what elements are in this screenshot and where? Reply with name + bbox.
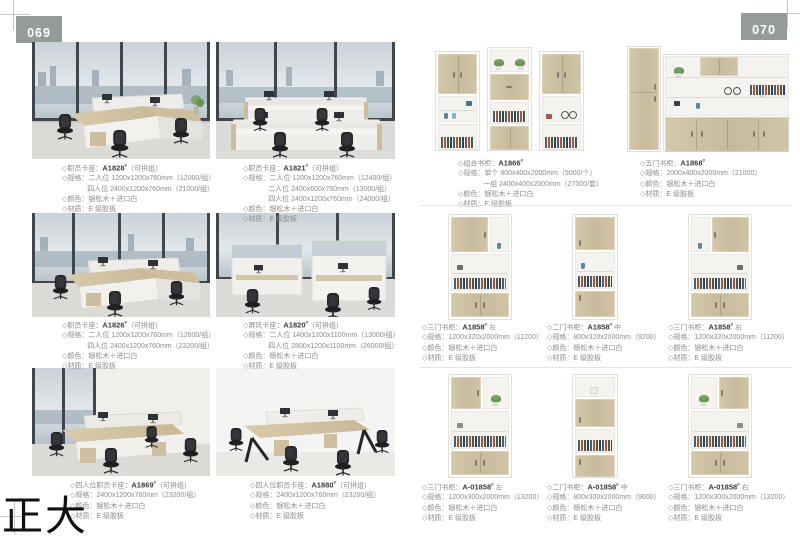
spec-line: ◇规格：800x320x2000mm（9200） [547, 333, 665, 343]
product-specs: ◇规格：800x300x2000mm（9600）◇颜色：银松木＋进口白◇材质：E… [547, 493, 665, 523]
spec-line: ◇颜色：银松木＋进口白 [243, 205, 418, 215]
spec-line: ◇颜色：银松木＋进口白 [250, 502, 425, 512]
spec-line: 四人位 2400x1200x760mm（21000/组） [62, 185, 237, 195]
spec-line: ◇规格：1200x300x2000mm（13200） [668, 493, 793, 503]
spec-line: ◇材质：E 级胶板 [62, 205, 237, 215]
spec-line: ◇规格：2400x1200x760mm（23200/组） [250, 491, 425, 501]
product-category: ◇五门书柜： [640, 160, 680, 167]
product-specs: ◇规格：800x320x2000mm（9200）◇颜色：银松木＋进口白◇材质：E… [547, 333, 665, 363]
bookcase-set-a1866 [435, 47, 585, 155]
product-model: A1820 [283, 320, 305, 329]
product-title: ◇三门书柜：A1858# 左 [422, 322, 547, 333]
caption-a1869: ◇四人位职员卡座：A1869#（可拼组） ◇规格：2400x1200x760mm… [70, 480, 245, 522]
product-category: ◇三门书柜： [422, 484, 462, 491]
spec-line: ◇材质：E 级胶板 [243, 215, 418, 225]
page-number-right: 070 [741, 13, 787, 40]
caption-a1858-right: ◇三门书柜：A1858# 右 ◇规格：1200x320x2000mm（11200… [668, 322, 793, 364]
spec-line: 四人位 2800x1200x1100mm（26000/组） [243, 342, 418, 352]
spec-line: ◇颜色：银松木＋进口白 [422, 344, 547, 354]
product-model: A1858 [708, 322, 730, 331]
spec-line: ◇材质：E 级胶板 [640, 190, 770, 200]
product-category: ◇四人位职员卡座： [250, 482, 311, 489]
workstation-photo-a1828 [32, 42, 210, 159]
product-specs: ◇规格：二人位 1200x1200x760mm（12400/组）二人位 2400… [243, 174, 418, 225]
bookcase-a01858-mid [572, 374, 618, 478]
caption-a1826: ◇职员卡座：A1826#（可拼组） ◇规格：二人位 1200x1200x760m… [62, 320, 237, 372]
photo-illustration [216, 368, 395, 476]
bookcase-unit [435, 51, 480, 151]
product-title: ◇组合书柜：A1866# [458, 158, 588, 169]
spec-line: ◇材质：E 级胶板 [668, 354, 793, 364]
spec-line: ◇材质：E 级胶板 [243, 362, 418, 372]
crop-mark [13, 0, 14, 30]
product-model: A1828 [102, 163, 124, 172]
caption-a01858-right: ◇三门书柜：A-01858# 右 ◇规格：1200x300x2000mm（132… [668, 482, 793, 524]
spec-line: ◇规格：二人位 1200x1200x760mm（12400/组） [243, 174, 418, 184]
spec-line: ◇颜色：银松木＋进口白 [547, 344, 665, 354]
photo-illustration [32, 368, 210, 476]
section-divider [420, 205, 792, 206]
product-model: A1821 [283, 163, 305, 172]
spec-line: ◇颜色：银松木＋进口白 [70, 502, 245, 512]
bookcase-shelf-section [663, 54, 789, 152]
workstation-photo-a1821 [216, 42, 395, 159]
spec-line: ◇规格：单个 800x400x2000mm（9000/个） [458, 169, 588, 179]
spec-line: 一组 2400x400x2000mm（27000/套） [458, 180, 588, 190]
product-model: A-01858 [708, 482, 737, 491]
spec-line: ◇材质：E 级胶板 [70, 512, 245, 522]
product-category: ◇二门书柜： [547, 324, 587, 331]
caption-a1858-left: ◇三门书柜：A1858# 左 ◇规格：1200x320x2000mm（11200… [422, 322, 547, 364]
product-specs: ◇规格：二人位 1200x1200x760mm（12600/组）四人位 2400… [62, 331, 237, 372]
product-title: ◇四人位职员卡座：A1880#（可拼组） [250, 480, 425, 491]
brand-watermark: 正大 [2, 496, 88, 537]
crop-mark [787, 0, 788, 28]
workstation-photo-a1820 [216, 213, 395, 317]
spec-line: ◇颜色：银松木＋进口白 [62, 352, 237, 362]
spec-line: ◇材质：E 级胶板 [250, 512, 425, 522]
spec-line: 四人位 2400x1200x760mm（24000/组） [243, 195, 418, 205]
photo-illustration [216, 213, 395, 317]
workstation-photo-a1826 [32, 213, 210, 317]
product-title: ◇职员卡座：A1828#（可拼组） [62, 163, 237, 174]
spec-line: ◇材质：E 级胶板 [668, 514, 793, 524]
product-specs: ◇规格：2400x1200x760mm（23200/组）◇颜色：银松木＋进口白◇… [250, 491, 425, 521]
product-title: ◇五门书柜：A1868# [640, 158, 770, 169]
caption-a01858-mid: ◇二门书柜：A-01858# 中 ◇规格：800x300x2000mm（9600… [547, 482, 665, 524]
product-model: A1880 [311, 480, 333, 489]
spec-line: ◇材质：E 级胶板 [547, 514, 665, 524]
bookcase-unit [539, 51, 584, 151]
spec-line: ◇规格：二人位 1200x1200x760mm（12000/组） [62, 174, 237, 184]
photo-illustration [32, 213, 210, 317]
product-specs: ◇规格：1200x300x2000mm（13200）◇颜色：银松木＋进口白◇材质… [668, 493, 793, 523]
workstation-photo-a1869 [32, 368, 210, 476]
spec-line: 四人位 2400x1200x760mm（23200/组） [62, 342, 237, 352]
product-model: A1869 [131, 480, 153, 489]
spec-line: ◇颜色：银松木＋进口白 [243, 352, 418, 362]
spec-line: ◇颜色：银松木＋进口白 [668, 504, 793, 514]
bookcase-a1868 [625, 44, 791, 155]
bookcase-a1858-mid [572, 214, 618, 320]
product-specs: ◇规格：1200x320x2000mm（11200）◇颜色：银松木＋进口白◇材质… [668, 333, 793, 363]
product-title: ◇职员卡座：A1826#（可拼组） [62, 320, 237, 331]
spec-line: ◇颜色：银松木＋进口白 [422, 504, 547, 514]
product-specs: ◇规格：2400x1200x760mm（23200/组）◇颜色：银松木＋进口白◇… [70, 491, 245, 521]
caption-a1820: ◇屏风卡座：A1820#（可拼组） ◇规格：二人位 1400x1200x1100… [243, 320, 418, 372]
product-model: A-01858 [587, 482, 616, 491]
product-specs: ◇规格：二人位 1200x1200x760mm（12000/组）四人位 2400… [62, 174, 237, 215]
product-model: A1858 [587, 322, 609, 331]
spec-line: ◇规格：1200x320x2000mm（11200） [422, 333, 547, 343]
partition-cubicle-far [232, 245, 302, 295]
product-title: ◇二门书柜：A1858# 中 [547, 322, 665, 333]
spec-line: 二人位 2400x600x760mm（13000/组） [243, 185, 418, 195]
product-model: A1868 [680, 158, 702, 167]
spec-line: ◇材质：E 级胶板 [547, 354, 665, 364]
catalog-spread: { "page": { "left_number": "069", "right… [0, 0, 800, 544]
product-category: ◇职员卡座： [243, 165, 283, 172]
product-category: ◇三门书柜： [668, 324, 708, 331]
crop-mark [0, 14, 30, 15]
spec-line: ◇规格：1200x300x2000mm（13200） [422, 493, 547, 503]
spec-line: ◇规格：二人位 1200x1200x760mm（12600/组） [62, 331, 237, 341]
product-model: A1826 [102, 320, 124, 329]
product-category: ◇组合书柜： [458, 160, 498, 167]
spec-line: ◇材质：E 级胶板 [62, 362, 237, 372]
product-specs: ◇规格：1200x320x2000mm（11200）◇颜色：银松木＋进口白◇材质… [422, 333, 547, 363]
caption-a1828: ◇职员卡座：A1828#（可拼组） ◇规格：二人位 1200x1200x760m… [62, 163, 237, 215]
product-specs: ◇规格：二人位 1400x1200x1100mm（13000/组）四人位 280… [243, 331, 418, 372]
product-category: ◇职员卡座： [62, 165, 102, 172]
product-title: ◇三门书柜：A1858# 右 [668, 322, 793, 333]
product-title: ◇四人位职员卡座：A1869#（可拼组） [70, 480, 245, 491]
spec-line: ◇颜色：银松木＋进口白 [668, 344, 793, 354]
bookcase-a1858-left [448, 214, 512, 320]
caption-a1868: ◇五门书柜：A1868# ◇规格：2000x400x2000mm（21000）◇… [640, 158, 770, 200]
spec-line: ◇颜色：银松木＋进口白 [547, 504, 665, 514]
photo-illustration [216, 42, 395, 159]
product-category: ◇四人位职员卡座： [70, 482, 131, 489]
product-model: A1858 [462, 322, 484, 331]
product-category: ◇三门书柜： [668, 484, 708, 491]
spec-line: ◇颜色：银松木＋进口白 [62, 195, 237, 205]
spec-line: ◇规格：二人位 1400x1200x1100mm（13000/组） [243, 331, 418, 341]
spec-line: ◇规格：1200x320x2000mm（11200） [668, 333, 793, 343]
product-specs: ◇规格：2000x400x2000mm（21000）◇颜色：银松木＋进口白◇材质… [640, 169, 770, 199]
product-title: ◇三门书柜：A-01858# 左 [422, 482, 547, 493]
bookcase-tall-cabinet [627, 46, 661, 152]
bookcase-a01858-left [448, 374, 512, 478]
workstation-photo-a1880 [216, 368, 395, 476]
caption-a1821: ◇职员卡座：A1821#（可拼组） ◇规格：二人位 1200x1200x760m… [243, 163, 418, 225]
product-title: ◇职员卡座：A1821#（可拼组） [243, 163, 418, 174]
product-title: ◇三门书柜：A-01858# 右 [668, 482, 793, 493]
product-model: A-01858 [462, 482, 491, 491]
page-number-left: 069 [16, 16, 62, 43]
spec-line: ◇规格：800x300x2000mm（9600） [547, 493, 665, 503]
caption-a1858-mid: ◇二门书柜：A1858# 中 ◇规格：800x320x2000mm（9200）◇… [547, 322, 665, 364]
product-specs: ◇规格：单个 800x400x2000mm（9000/个）一组 2400x400… [458, 169, 588, 210]
bookcase-unit [487, 47, 532, 151]
spec-line: ◇规格：2000x400x2000mm（21000） [640, 169, 770, 179]
section-divider [420, 367, 792, 368]
product-category: ◇职员卡座： [62, 322, 102, 329]
spec-line: ◇材质：E 级胶板 [422, 514, 547, 524]
spec-line: ◇材质：E 级胶板 [422, 354, 547, 364]
product-specs: ◇规格：1200x300x2000mm（13200）◇颜色：银松木＋进口白◇材质… [422, 493, 547, 523]
spec-line: ◇规格：2400x1200x760mm（23200/组） [70, 491, 245, 501]
caption-a1866: ◇组合书柜：A1866# ◇规格：单个 800x400x2000mm（9000/… [458, 158, 588, 210]
bookcase-a01858-right [688, 374, 752, 478]
product-category: ◇屏风卡座： [243, 322, 283, 329]
caption-a1880: ◇四人位职员卡座：A1880#（可拼组） ◇规格：2400x1200x760mm… [250, 480, 425, 522]
product-category: ◇二门书柜： [547, 484, 587, 491]
photo-illustration [32, 42, 210, 159]
product-title: ◇屏风卡座：A1820#（可拼组） [243, 320, 418, 331]
bookcase-a1858-right [688, 214, 752, 320]
spec-line: ◇颜色：银松木＋进口白 [640, 180, 770, 190]
product-title: ◇二门书柜：A-01858# 中 [547, 482, 665, 493]
caption-a01858-left: ◇三门书柜：A-01858# 左 ◇规格：1200x300x2000mm（132… [422, 482, 547, 524]
product-model: A1866 [498, 158, 520, 167]
product-category: ◇三门书柜： [422, 324, 462, 331]
spec-line: ◇颜色：银松木＋进口白 [458, 190, 588, 200]
